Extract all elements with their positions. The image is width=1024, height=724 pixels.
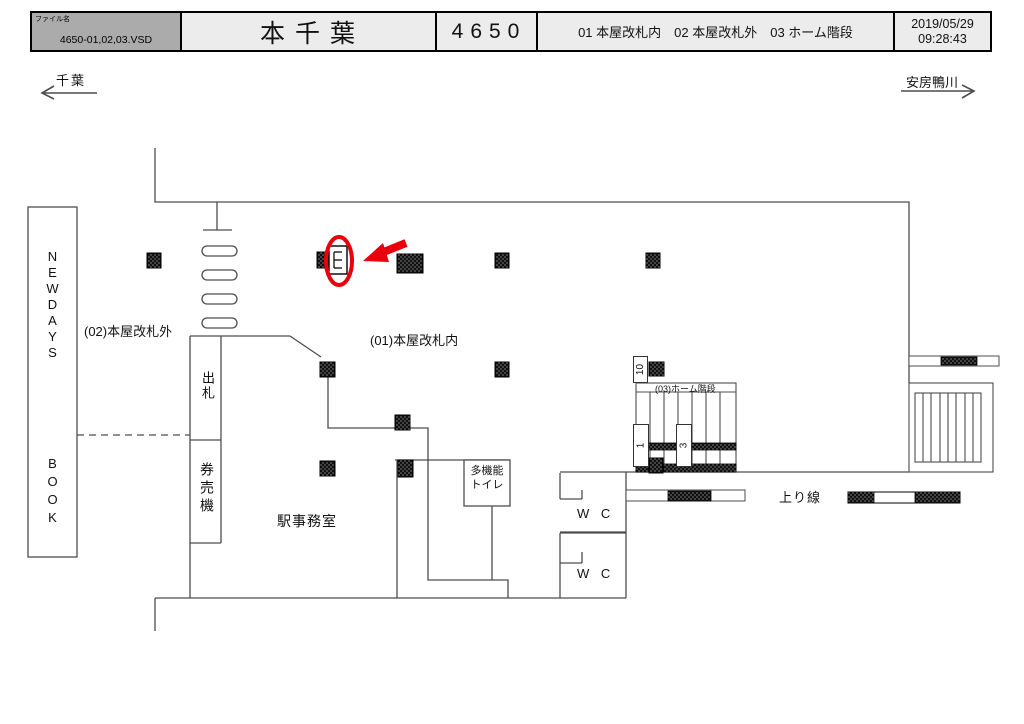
- wc-upper-label: W C: [577, 506, 614, 521]
- platform-stairs-label: (03)ホーム階段: [655, 382, 716, 395]
- position-number-3: 3: [679, 443, 690, 449]
- multi-toilet-line2: トイレ: [464, 479, 510, 493]
- position-box-1: 1: [633, 424, 649, 467]
- multi-toilet-line1: 多機能: [464, 465, 510, 479]
- station-plan-canvas: ファイル名 4650-01,02,03.VSD 本千葉 4650 01 本屋改札…: [0, 0, 1024, 724]
- ticket-gate-pills: [202, 246, 237, 328]
- position-box-10: 10: [633, 356, 648, 383]
- ticket-window-label: 出札: [198, 371, 217, 401]
- book-label: BOOK: [45, 456, 60, 528]
- right-arrow-icon: [901, 85, 974, 98]
- walls: [28, 148, 909, 631]
- up-line-label: 上り線: [779, 487, 821, 506]
- multi-toilet-label: 多機能 トイレ: [464, 465, 510, 492]
- right-wall-band: [909, 356, 999, 366]
- ticket-machine-label: 券売機: [197, 462, 217, 516]
- station-office-label: 駅事務室: [277, 511, 337, 531]
- right-stairs-block: [909, 383, 993, 472]
- floor-plan-svg: [0, 0, 1024, 724]
- left-arrow-icon: [42, 86, 97, 99]
- stairs-band-upper: [648, 443, 736, 450]
- newdays-label: NEWDAYS: [45, 249, 60, 361]
- up-line-band: [626, 490, 745, 501]
- position-number-1: 1: [636, 443, 647, 449]
- position-number-10: 10: [635, 364, 646, 375]
- sign-icon: [329, 246, 347, 274]
- outside-gate-label: (02)本屋改札外: [84, 321, 172, 340]
- position-box-3: 3: [676, 424, 692, 467]
- ad-position-squares: [147, 252, 664, 477]
- bottom-right-band: [848, 492, 960, 503]
- inside-gate-label: (01)本屋改札内: [370, 330, 458, 349]
- wc-lower-label: W C: [577, 566, 614, 581]
